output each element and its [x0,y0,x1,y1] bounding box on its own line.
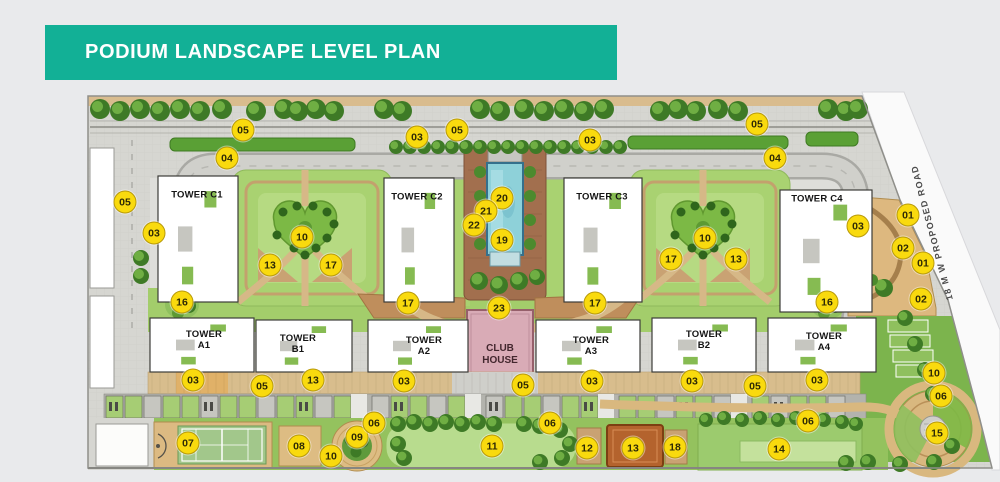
tower-label-tower-a2: TOWER A2 [406,336,442,358]
plan-marker-17: 17 [397,292,420,315]
plan-marker-02: 02 [892,237,915,260]
tower-label-tower-c3: TOWER C3 [576,193,628,204]
plan-marker-03: 03 [806,369,829,392]
plan-marker-10: 10 [694,227,717,250]
plan-marker-16: 16 [171,291,194,314]
plan-marker-05: 05 [251,375,274,398]
plan-marker-10: 10 [923,362,946,385]
plan-marker-03: 03 [847,215,870,238]
plan-marker-03: 03 [406,126,429,149]
plan-marker-05: 05 [744,375,767,398]
plan-marker-03: 03 [182,369,205,392]
plan-marker-23: 23 [488,297,511,320]
plan-marker-11: 11 [481,435,504,458]
plan-marker-07: 07 [177,432,200,455]
tower-label-tower-b1: TOWER B1 [280,334,316,356]
tower-label-tower-c1: TOWER C1 [171,191,223,202]
plan-marker-05: 05 [746,113,769,136]
plan-marker-03: 03 [143,222,166,245]
tower-label-tower-a1: TOWER A1 [186,330,222,352]
plan-marker-17: 17 [320,254,343,277]
plan-marker-01: 01 [897,204,920,227]
plan-marker-12: 12 [576,437,599,460]
plan-marker-06: 06 [363,412,386,435]
plan-marker-08: 08 [288,435,311,458]
plan-marker-13: 13 [622,437,645,460]
tower-label-tower-a3: TOWER A3 [573,336,609,358]
plan-marker-17: 17 [660,248,683,271]
plan-marker-05: 05 [512,374,535,397]
plan-marker-03: 03 [681,370,704,393]
plan-marker-06: 06 [539,412,562,435]
plan-marker-10: 10 [291,226,314,249]
tower-label-tower-b2: TOWER B2 [686,330,722,352]
plan-marker-03: 03 [581,370,604,393]
plan-marker-22: 22 [463,214,486,237]
plan-marker-16: 16 [816,291,839,314]
plan-marker-18: 18 [664,436,687,459]
tower-label-tower-c2: TOWER C2 [391,193,443,204]
plan-marker-05: 05 [232,119,255,142]
plan-marker-05: 05 [114,191,137,214]
plan-marker-10: 10 [320,445,343,468]
plan-marker-13: 13 [302,369,325,392]
plan-marker-04: 04 [216,147,239,170]
club-house-label: CLUB HOUSE [476,343,524,367]
plan-marker-06: 06 [797,410,820,433]
plan-marker-03: 03 [579,129,602,152]
plan-marker-13: 13 [259,254,282,277]
tower-label-tower-a4: TOWER A4 [806,332,842,354]
plan-marker-06: 06 [930,385,953,408]
plan-marker-19: 19 [491,229,514,252]
plan-marker-01: 01 [912,252,935,275]
plan-marker-15: 15 [926,422,949,445]
plan-marker-17: 17 [584,292,607,315]
plan-marker-13: 13 [725,248,748,271]
plan-marker-14: 14 [768,438,791,461]
plan-marker-04: 04 [764,147,787,170]
plan-marker-05: 05 [446,119,469,142]
title-banner: PODIUM LANDSCAPE LEVEL PLAN [45,25,617,80]
plan-marker-03: 03 [393,370,416,393]
page-title: PODIUM LANDSCAPE LEVEL PLAN [85,41,441,64]
tower-label-tower-c4: TOWER C4 [791,195,843,206]
page: PODIUM LANDSCAPE LEVEL PLAN [0,0,1000,482]
plan-marker-02: 02 [910,288,933,311]
